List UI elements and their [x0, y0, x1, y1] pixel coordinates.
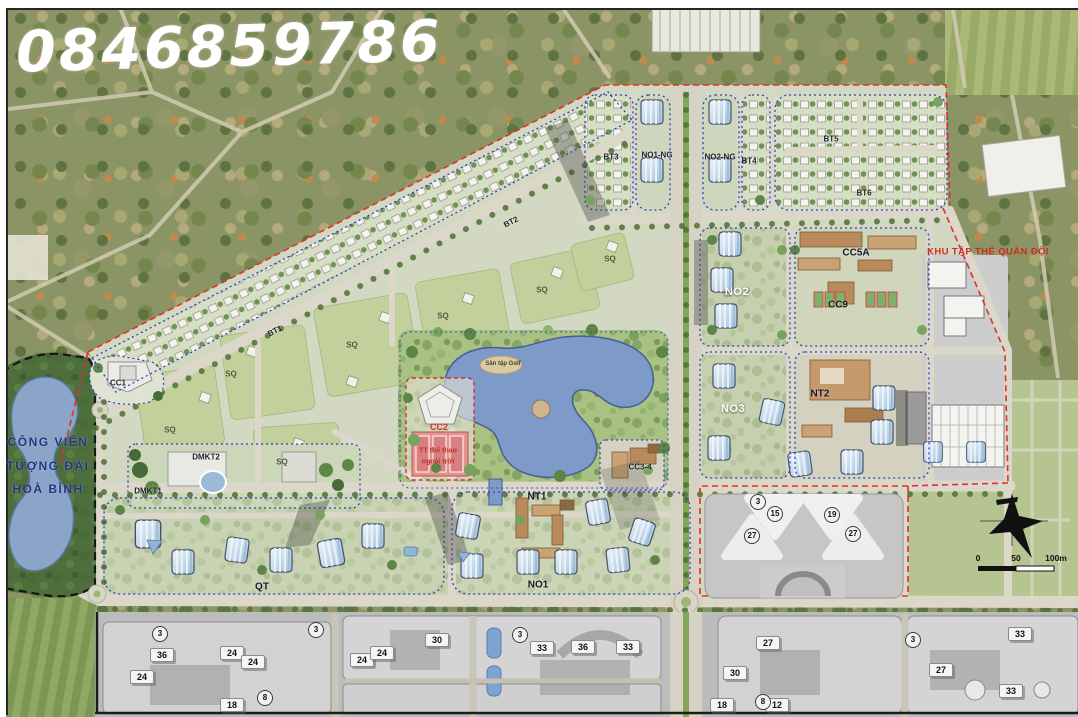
farm-patch — [0, 235, 48, 280]
canal — [489, 479, 502, 505]
masterplan-map: 0846859786 CÔNG VIÊN TƯỢNG ĐÀI HOÀ BÌNH … — [0, 0, 1078, 717]
peace-park — [0, 353, 96, 598]
cc1-lot — [90, 356, 164, 404]
factory-building — [982, 135, 1066, 196]
cc2-sports-block — [406, 378, 474, 480]
scale-bar — [978, 566, 1054, 571]
greenhouse-building — [652, 6, 760, 52]
lake-stage — [532, 400, 550, 418]
triangle-towers-block — [705, 494, 903, 598]
adjacent-plan-strip — [95, 612, 1078, 717]
golf-practice-green — [480, 356, 522, 374]
masterplan-drawing — [0, 0, 1078, 717]
